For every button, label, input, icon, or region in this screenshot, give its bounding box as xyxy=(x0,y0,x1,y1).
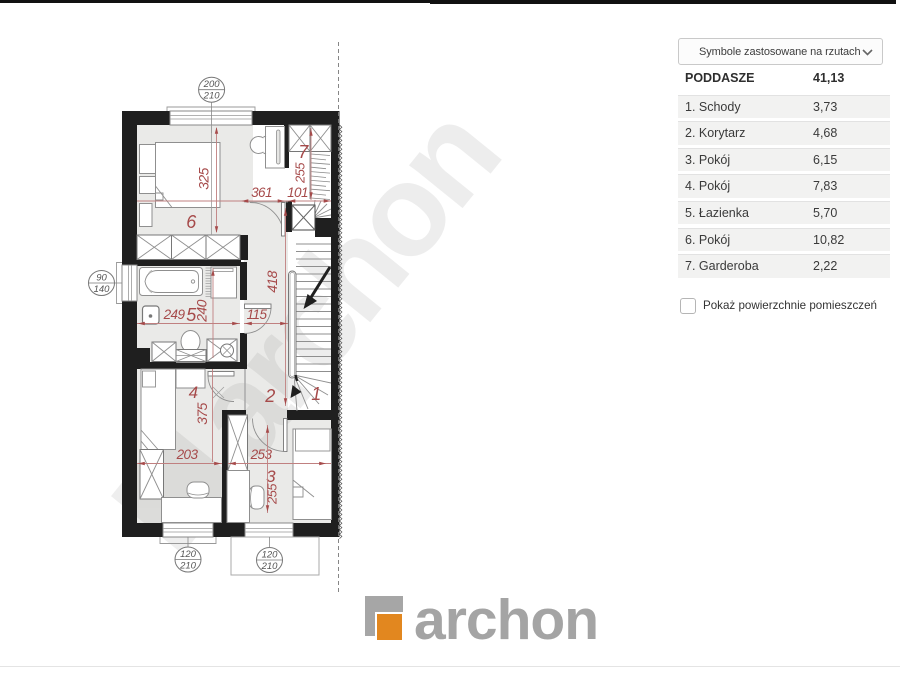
svg-text:253: 253 xyxy=(250,447,273,462)
svg-text:115: 115 xyxy=(247,307,268,322)
svg-text:4: 4 xyxy=(189,383,198,402)
svg-text:418: 418 xyxy=(264,270,280,292)
svg-text:240: 240 xyxy=(194,299,210,322)
svg-text:6: 6 xyxy=(186,212,197,232)
svg-text:325: 325 xyxy=(196,167,212,189)
svg-text:140: 140 xyxy=(94,284,111,295)
svg-text:375: 375 xyxy=(194,402,210,424)
svg-text:203: 203 xyxy=(176,447,199,462)
svg-text:1: 1 xyxy=(311,384,320,404)
svg-text:255: 255 xyxy=(265,483,280,505)
svg-text:2: 2 xyxy=(264,386,275,406)
svg-text:210: 210 xyxy=(261,561,279,572)
svg-text:7: 7 xyxy=(298,142,309,162)
svg-text:361: 361 xyxy=(251,185,272,200)
svg-text:255: 255 xyxy=(293,162,308,184)
svg-text:210: 210 xyxy=(203,91,221,102)
svg-text:101: 101 xyxy=(287,185,308,200)
svg-text:120: 120 xyxy=(262,550,279,561)
svg-text:120: 120 xyxy=(180,549,197,560)
svg-text:90: 90 xyxy=(96,273,107,284)
svg-text:210: 210 xyxy=(179,561,197,572)
svg-text:249: 249 xyxy=(163,307,186,322)
svg-text:200: 200 xyxy=(203,79,221,90)
